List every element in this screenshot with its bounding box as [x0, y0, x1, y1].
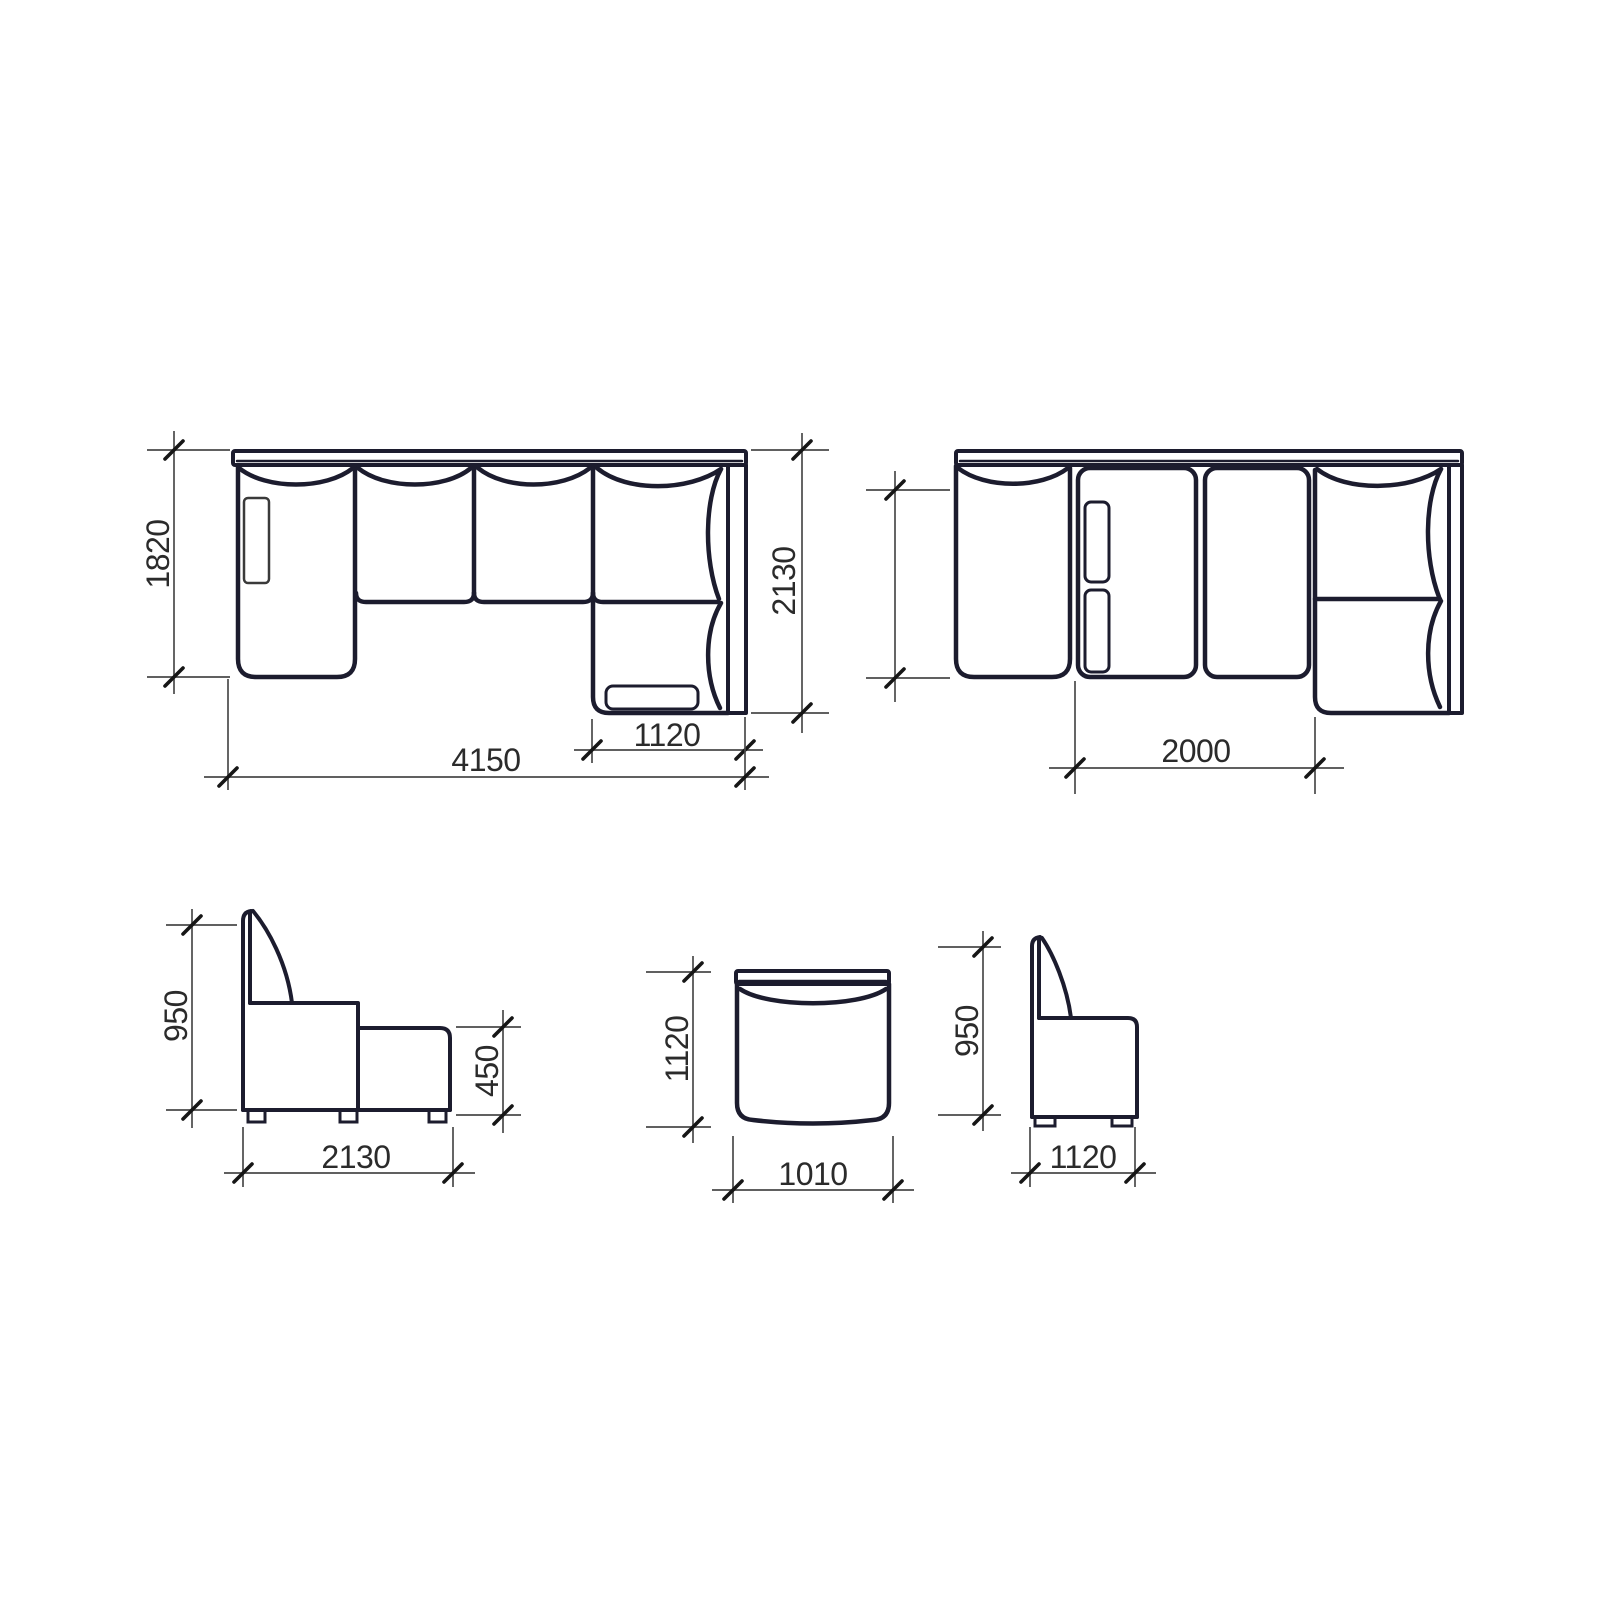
corner-cushion-curve — [1317, 469, 1441, 486]
seat-cushion-curve-3 — [478, 468, 590, 485]
view-module-side: 950 1120 — [938, 931, 1156, 1187]
seat-body — [250, 1003, 358, 1110]
backrest-cushion-curve — [253, 911, 292, 1003]
dim-label-height: 950 — [158, 990, 194, 1042]
backrest-cushion-curve — [1042, 938, 1071, 1018]
corner-seat-divider — [593, 593, 718, 602]
right-back-rail — [1449, 465, 1462, 713]
drawing-page: 1820 2130 1120 4150 — [0, 0, 1600, 1600]
dimension-unlabeled-left — [866, 471, 950, 702]
dim-label-left-depth: 1820 — [140, 519, 176, 588]
view-corner-sofa-plan: 1820 2130 1120 4150 — [140, 431, 829, 790]
view-sofa-side: 950 450 2130 — [158, 909, 521, 1187]
corner-back-curve-upper — [1428, 469, 1441, 597]
dimension-1120-module-depth: 1120 — [646, 956, 711, 1143]
seat-cushion-curve — [958, 468, 1068, 484]
dimension-2130-right: 2130 — [751, 433, 829, 733]
dim-label-total-width: 4150 — [451, 742, 520, 778]
dimension-1010-module-width: 1010 — [712, 1136, 914, 1203]
dim-label-bed-span: 2000 — [1161, 733, 1230, 769]
foot-left — [1035, 1117, 1055, 1126]
back-rail — [233, 451, 746, 465]
seat-cushion-curve-4 — [597, 468, 721, 486]
dimension-1820: 1820 — [140, 431, 230, 694]
seat-cushion-curve-2 — [358, 468, 471, 485]
chaise-armrest-cushion — [244, 498, 269, 583]
foot-right — [1112, 1117, 1132, 1126]
dim-label-module-width: 1010 — [778, 1156, 847, 1192]
bed-pillow-2 — [1085, 590, 1109, 672]
bed-panel-2 — [1205, 468, 1309, 677]
view-module-plan: 1120 1010 — [646, 956, 914, 1203]
back-rail — [956, 451, 1462, 465]
dimension-950-module-height: 950 — [938, 931, 1001, 1131]
seat-cushion-curve — [740, 989, 886, 1003]
bed-panel-1 — [1078, 468, 1196, 677]
right-back-rail — [728, 465, 746, 713]
dim-label-module-height: 950 — [949, 1005, 985, 1057]
ottoman-body — [358, 1028, 450, 1110]
corner-back-curve-lower — [1428, 601, 1441, 707]
view-sofa-bed-plan: 2000 — [866, 451, 1462, 794]
seat-body — [1039, 1018, 1137, 1117]
left-seat-section — [956, 466, 1070, 677]
corner-pocket-cushion — [606, 686, 698, 709]
dim-label-corner-width: 1120 — [634, 717, 701, 753]
seat-front-edge-2 — [474, 593, 593, 602]
technical-drawing-canvas: 1820 2130 1120 4150 — [0, 0, 1600, 1600]
dimension-1120-corner: 1120 — [574, 717, 763, 763]
corner-back-curve-upper — [708, 469, 721, 599]
seat-front-edge-1 — [356, 593, 474, 602]
seat-cushion-curve-1 — [239, 468, 353, 485]
dimension-450-ottoman: 450 — [456, 1010, 521, 1133]
bed-pillow-1 — [1085, 502, 1109, 582]
dimension-2000-bed: 2000 — [1049, 681, 1344, 794]
dim-label-total-depth: 2130 — [321, 1139, 390, 1175]
dim-label-right-depth: 2130 — [766, 546, 802, 615]
dim-label-ottoman-height: 450 — [469, 1045, 505, 1097]
dimension-1120-module-side-depth: 1120 — [1011, 1127, 1156, 1187]
dimension-950-height: 950 — [158, 909, 237, 1128]
corner-back-curve-lower — [708, 603, 721, 708]
dimension-2130-depth: 2130 — [224, 1127, 475, 1187]
dim-label-module-depth: 1120 — [659, 1016, 695, 1083]
dim-label-module-side-depth: 1120 — [1050, 1139, 1117, 1175]
